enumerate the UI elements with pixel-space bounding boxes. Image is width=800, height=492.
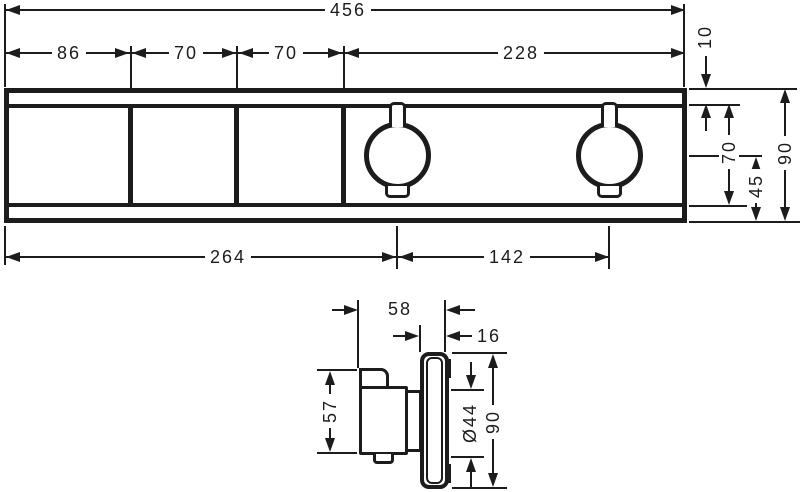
dim-arrow <box>751 207 761 221</box>
dim-arrow <box>780 207 790 221</box>
dim-arrow <box>701 104 711 118</box>
dim-arrow <box>6 48 20 58</box>
dim-arrow <box>239 48 253 58</box>
extension-line <box>608 226 610 269</box>
dim-arrow <box>344 305 358 315</box>
dim-arrow <box>466 458 476 472</box>
dim-arrow <box>132 48 146 58</box>
extension-line <box>4 4 6 87</box>
dim-arrow <box>724 104 734 118</box>
dim-arrow <box>6 5 20 15</box>
dim-top-strip-label: 10 <box>695 20 715 54</box>
technical-drawing-canvas: 456 86 70 70 228 10 70 45 90 264 142 <box>0 0 800 492</box>
dim-arrow <box>595 252 609 262</box>
dim-arrow <box>345 48 359 58</box>
dim-section-label: 228 <box>498 43 544 63</box>
dim-arrow <box>382 252 396 262</box>
dim-total-depth-label: 58 <box>383 299 417 319</box>
extension-line <box>683 4 685 87</box>
dim-inner-height-label: 70 <box>719 135 739 169</box>
handle-knob-circle <box>364 122 431 189</box>
dim-44-line <box>470 362 472 376</box>
dim-arrow <box>446 331 460 341</box>
dim-handle-spacing-label: 142 <box>484 247 530 267</box>
handle-knob-circle <box>576 122 643 189</box>
section-divider <box>128 106 133 205</box>
handle-knob-neck <box>601 102 618 127</box>
extension-line <box>451 389 484 391</box>
side-escutcheon-inner <box>426 357 443 484</box>
extension-line <box>689 221 800 223</box>
side-handle-tab <box>373 454 394 464</box>
dim-handle-height-label: 57 <box>320 394 340 428</box>
dim-10-line <box>705 56 707 76</box>
dim-section-label: 70 <box>169 43 203 63</box>
dim-arrow <box>222 48 236 58</box>
extension-line <box>396 226 398 269</box>
handle-knob-tab <box>385 186 410 198</box>
dim-handle-diameter-label: Ø44 <box>460 398 480 448</box>
dim-center-to-bottom-label: 45 <box>746 169 766 203</box>
side-handle-paddle <box>359 368 389 389</box>
dim-arrow <box>671 5 685 15</box>
dim-escutcheon-depth-label: 16 <box>472 326 506 346</box>
dim-16-line <box>460 335 472 337</box>
side-handle-body <box>359 386 408 455</box>
dim-arrow <box>399 252 413 262</box>
section-divider <box>234 106 239 205</box>
dim-section-label: 86 <box>52 43 86 63</box>
dim-escutcheon-height-label: 90 <box>483 405 503 439</box>
dim-44-line <box>470 471 472 487</box>
dim-arrow <box>405 331 419 341</box>
handle-knob-tab <box>597 186 622 198</box>
dim-left-to-handle-label: 264 <box>205 247 251 267</box>
dim-arrow <box>6 252 20 262</box>
dim-arrow <box>724 191 734 205</box>
dim-total-width-label: 456 <box>325 0 371 20</box>
dim-total-height-label: 90 <box>775 136 795 170</box>
dim-arrow <box>671 48 685 58</box>
dim-arrow <box>701 74 711 88</box>
extension-line <box>317 452 357 454</box>
extension-line <box>689 205 747 207</box>
dim-arrow <box>446 305 460 315</box>
dim-58-line <box>460 309 475 311</box>
handle-knob-neck <box>389 102 406 127</box>
dim-section-label: 70 <box>269 43 303 63</box>
dim-arrow <box>115 48 129 58</box>
extension-line <box>419 325 421 352</box>
dim-arrow <box>325 438 335 452</box>
extension-line <box>452 487 507 489</box>
section-divider <box>341 106 346 205</box>
dim-10-line <box>705 118 707 131</box>
extension-line <box>452 352 507 354</box>
dim-arrow <box>325 371 335 385</box>
dim-arrow <box>328 48 342 58</box>
extension-line <box>317 369 357 371</box>
dim-arrow <box>466 375 476 389</box>
dim-arrow <box>488 473 498 487</box>
